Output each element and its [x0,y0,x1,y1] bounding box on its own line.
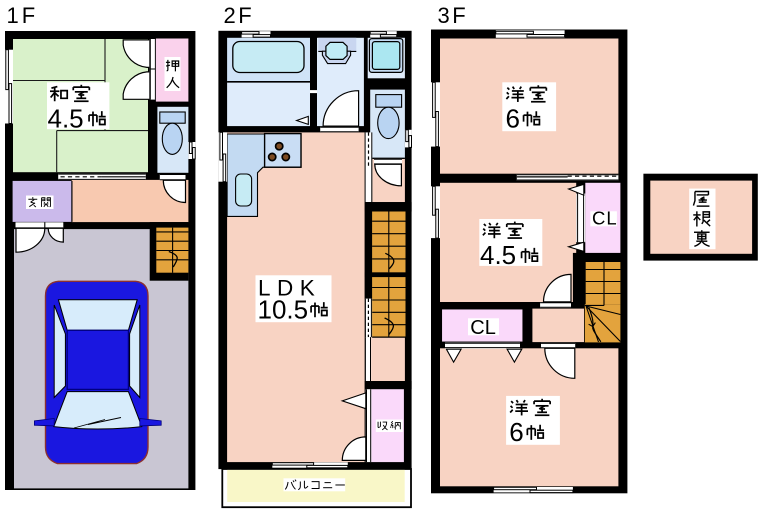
svg-text:6: 6 [506,104,520,134]
svg-text:6: 6 [509,417,523,447]
svg-text:4.5: 4.5 [480,240,516,270]
svg-text:4.5: 4.5 [48,104,84,134]
svg-text:CL: CL [592,208,618,229]
svg-text:2F: 2F [224,3,255,28]
svg-text:10.5: 10.5 [258,294,309,324]
svg-text:3F: 3F [438,3,469,28]
svg-text:CL: CL [470,317,496,339]
svg-text:1F: 1F [7,3,39,28]
